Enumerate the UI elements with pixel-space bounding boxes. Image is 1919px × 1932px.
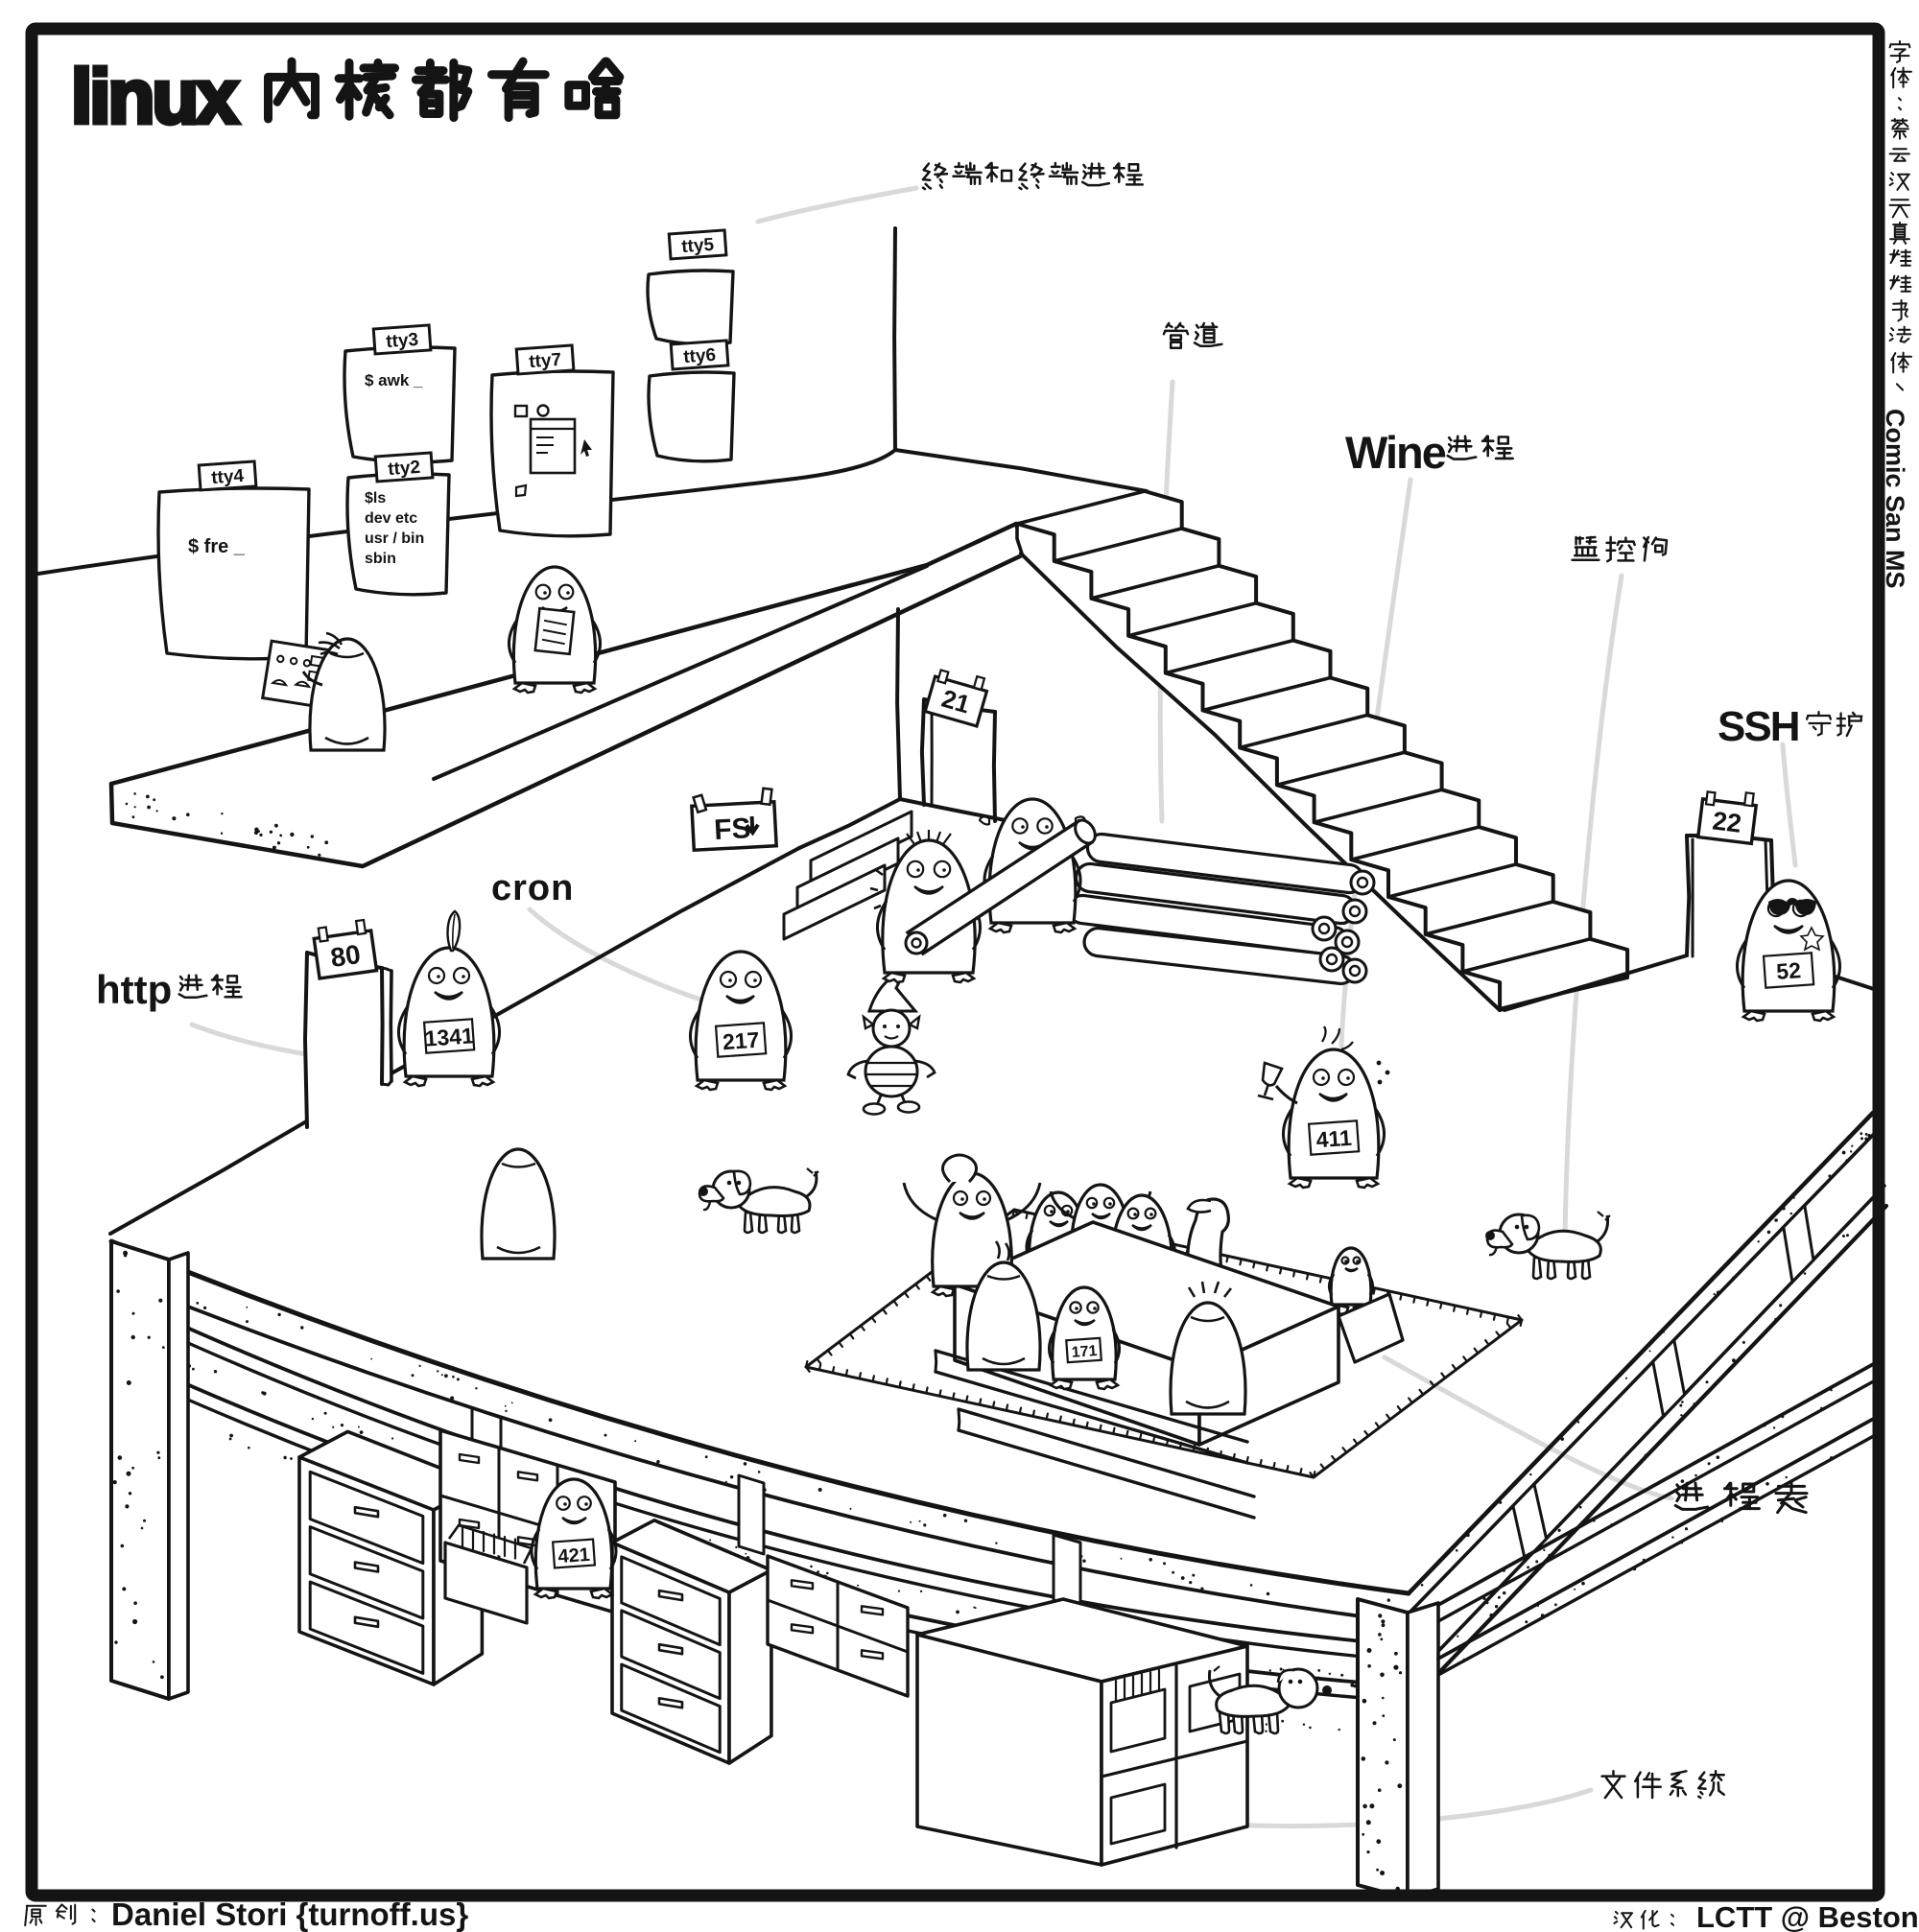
svg-text:FS: FS <box>713 813 751 846</box>
svg-text:SSH: SSH <box>1718 703 1798 750</box>
svg-text:52: 52 <box>1775 957 1801 984</box>
svg-text:1341: 1341 <box>424 1023 475 1051</box>
svg-text:cron: cron <box>491 868 574 908</box>
svg-text:dev etc: dev etc <box>365 510 417 527</box>
svg-text:linux: linux <box>71 54 238 139</box>
svg-text:217: 217 <box>722 1027 760 1055</box>
svg-text:$ fre _: $ fre _ <box>188 536 246 557</box>
svg-text:$ awk _: $ awk _ <box>365 371 423 389</box>
svg-text:LCTT @ Bestony: LCTT @ Bestony <box>1696 1900 1919 1932</box>
svg-text:tty3: tty3 <box>386 330 419 352</box>
svg-text:171: 171 <box>1071 1343 1098 1361</box>
svg-text:tty6: tty6 <box>683 345 717 367</box>
svg-text:tty2: tty2 <box>388 458 421 480</box>
svg-text:tty5: tty5 <box>681 235 716 257</box>
svg-text:tty7: tty7 <box>529 350 562 372</box>
svg-text:http: http <box>96 967 172 1012</box>
svg-text:sbin: sbin <box>365 551 396 567</box>
svg-text:Daniel Stori {turnoff.us}: Daniel Stori {turnoff.us} <box>111 1897 468 1932</box>
svg-text:22: 22 <box>1711 806 1742 837</box>
svg-text:Wine: Wine <box>1345 427 1446 478</box>
svg-text:$ls: $ls <box>365 490 386 507</box>
svg-text:411: 411 <box>1315 1125 1353 1153</box>
svg-text:usr / bin: usr / bin <box>365 530 424 547</box>
svg-text:80: 80 <box>328 939 362 973</box>
svg-text:421: 421 <box>557 1544 591 1567</box>
svg-text:tty4: tty4 <box>211 466 246 488</box>
